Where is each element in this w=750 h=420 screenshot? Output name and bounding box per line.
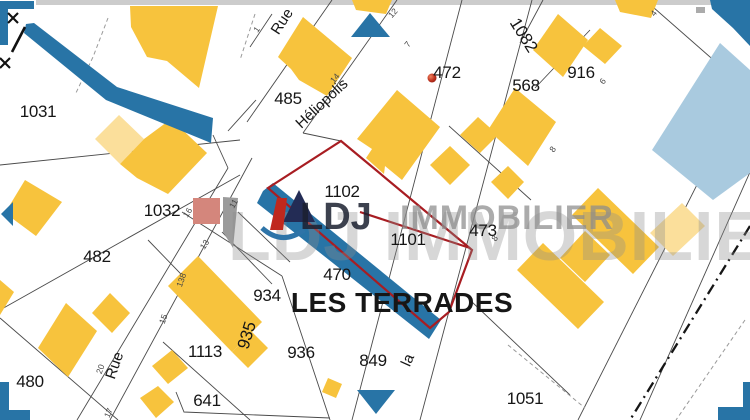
flow-arrow-down bbox=[357, 390, 395, 414]
parcel-number: 480 bbox=[16, 372, 43, 391]
parcel-number: 1051 bbox=[507, 389, 544, 408]
parcel-number: 485 bbox=[274, 89, 301, 108]
edge-arrow-left bbox=[1, 202, 13, 226]
parcel-number: 568 bbox=[512, 76, 539, 95]
parcel-number: 482 bbox=[83, 247, 110, 266]
parcel-number: 1102 bbox=[324, 182, 359, 201]
corner-structure-bottom-right bbox=[718, 382, 750, 420]
parcel-number: 1032 bbox=[144, 201, 181, 220]
parcel-number: 936 bbox=[287, 343, 314, 362]
parcel-number: 472 bbox=[433, 63, 460, 82]
house-number: 6 bbox=[597, 76, 608, 86]
parcel-number: 849 bbox=[359, 351, 386, 370]
street-name: la bbox=[398, 351, 419, 369]
parcel-number: 1113 bbox=[188, 342, 222, 361]
cadastral-map-view[interactable]: LDJ IMMOBILIER LDJ IMMOBILIER LES TERRAD… bbox=[0, 0, 750, 420]
house-number: 7 bbox=[402, 39, 413, 49]
area-name-label: LES TERRADES bbox=[291, 287, 513, 318]
street-name-labels: RueHéliopolisRuela bbox=[102, 5, 418, 381]
watermark-brand-rest: IMMOBILIER bbox=[400, 199, 614, 237]
survey-tick bbox=[696, 7, 705, 13]
house-number: 13 bbox=[198, 237, 212, 251]
parcel-number: 470 bbox=[323, 265, 350, 284]
street-name: Rue bbox=[102, 350, 127, 382]
parcel-number: 1101 bbox=[390, 230, 425, 249]
house-number: 1 bbox=[251, 24, 262, 34]
parcel-number: 934 bbox=[253, 286, 280, 305]
map-canvas[interactable]: LDJ IMMOBILIER LDJ IMMOBILIER LES TERRAD… bbox=[0, 0, 750, 420]
large-light-blue-building bbox=[652, 43, 750, 200]
house-number: 8 bbox=[547, 144, 558, 154]
parcel-number: 641 bbox=[193, 391, 220, 410]
street-name: Rue bbox=[268, 5, 297, 37]
parcel-number: 1031 bbox=[20, 102, 57, 121]
corner-arrow-top-right bbox=[710, 0, 750, 46]
parcel-number: 916 bbox=[567, 63, 594, 82]
salmon-building bbox=[193, 198, 220, 224]
flow-arrow-up bbox=[351, 13, 390, 37]
watermark-brand-bold: LDJ bbox=[300, 196, 372, 238]
